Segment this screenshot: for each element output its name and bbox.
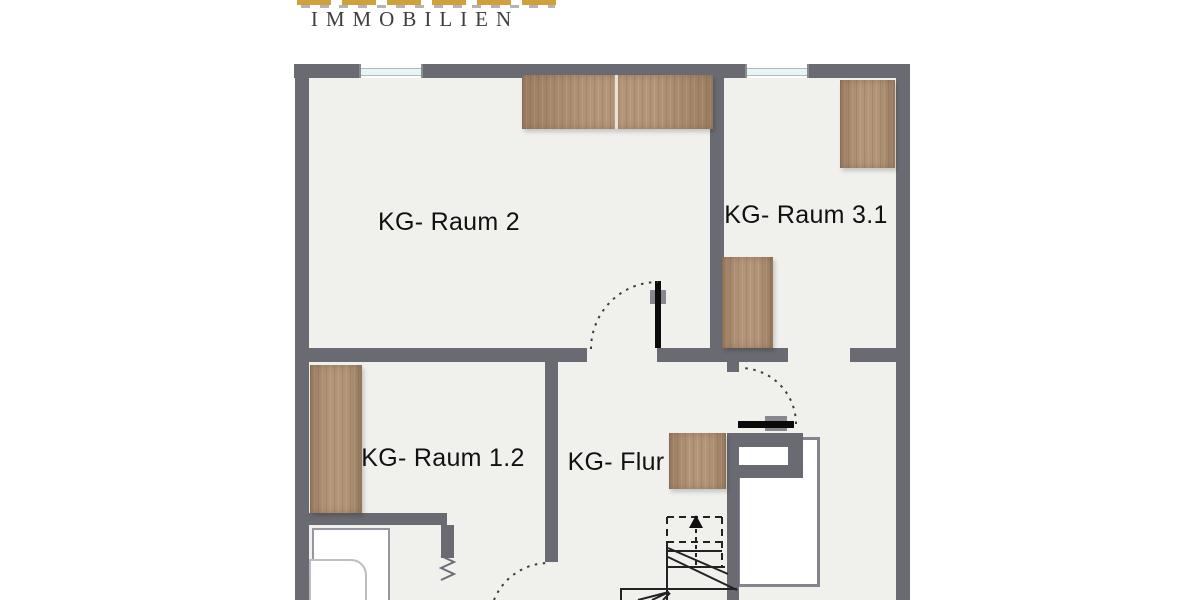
floorplan-page: IMMOBILIEN <box>0 0 1200 600</box>
wall-right <box>896 64 910 600</box>
wall-raum12-bottom <box>295 513 447 525</box>
furniture-wardrobe-raum31 <box>840 80 895 168</box>
window-symbol <box>745 64 809 78</box>
sink-basin <box>309 559 367 600</box>
basement-window-wall-block <box>727 433 803 478</box>
furniture-cabinet-raum2 <box>522 75 713 129</box>
logo-immobilien-text: IMMOBILIEN <box>289 7 541 32</box>
window-symbol <box>359 64 423 78</box>
room-label-raum31: KG- Raum 3.1 <box>696 201 916 230</box>
basement-window-opening <box>739 447 788 465</box>
furniture-cabinet-raum12 <box>310 365 362 513</box>
wall-raum12-bottom-stub <box>441 525 454 558</box>
wall-mid-right <box>850 348 910 362</box>
window-glazing <box>747 68 807 76</box>
door-leaf-raum2 <box>655 281 661 348</box>
wall-mid-center <box>657 348 788 362</box>
cabinet-divider <box>615 75 618 129</box>
wall-stub <box>727 362 739 372</box>
wall-mid-left <box>295 348 587 362</box>
furniture-cabinet-raum31 <box>722 257 773 348</box>
room-label-flur: KG- Flur <box>536 448 696 477</box>
room-label-raum2: KG- Raum 2 <box>339 208 559 237</box>
room-label-raum12: KG- Raum 1.2 <box>333 444 553 473</box>
window-glazing <box>361 68 421 76</box>
door-leaf-right-room <box>738 421 794 428</box>
